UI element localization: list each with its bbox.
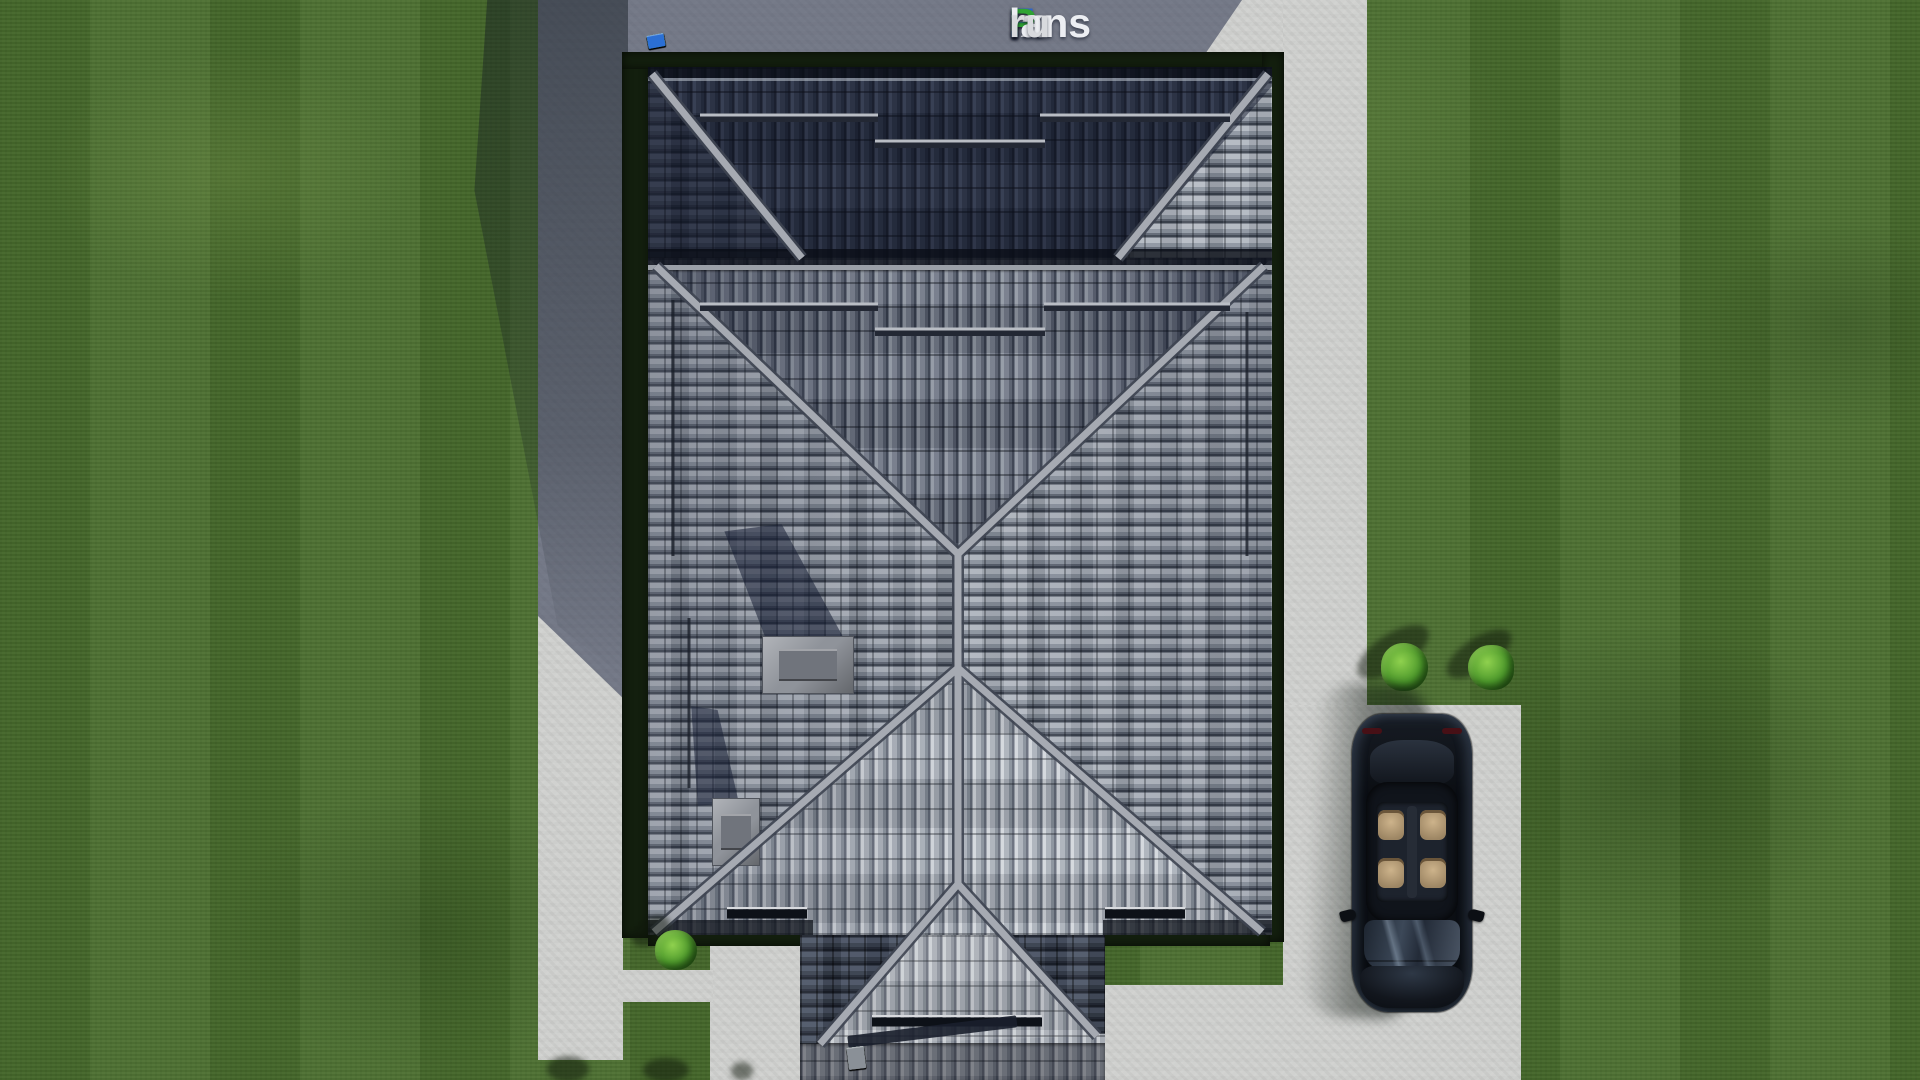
garage-fascia	[648, 78, 1272, 81]
car-sunroof	[1376, 802, 1448, 902]
chimney-cap	[779, 649, 837, 680]
watermark-segment: ru	[1009, 0, 1050, 47]
garage-roof	[648, 67, 1272, 258]
car-mirror-left	[1339, 908, 1357, 923]
porch-walkway-link	[618, 970, 713, 1002]
decor-tile	[647, 33, 666, 49]
plant-shadow	[643, 1058, 689, 1080]
car-roof	[1366, 782, 1458, 922]
garden-bed-left	[622, 52, 650, 938]
roof-vent	[712, 798, 760, 866]
decor-tile	[847, 1046, 867, 1070]
plant-shadow	[731, 1062, 753, 1080]
garage-gap-band	[648, 249, 1272, 258]
bush	[1468, 645, 1514, 690]
main-top-ridge-cap	[648, 265, 1272, 270]
car-center-console	[1407, 806, 1417, 898]
porch-walkway-right	[1105, 985, 1285, 1080]
front-bush	[655, 930, 697, 970]
aerial-house-render: FixPlans.ru	[0, 0, 1920, 1080]
car-seat	[1378, 858, 1404, 888]
bush	[1381, 643, 1428, 691]
garage-eave-top	[648, 67, 1272, 78]
main-gap-band	[648, 258, 1272, 265]
car-windshield	[1364, 920, 1460, 970]
car-taillight-right	[1442, 728, 1462, 734]
plant-shadow	[547, 1056, 589, 1080]
chimney	[762, 636, 854, 694]
porch-walkway	[710, 935, 800, 1080]
car-seat	[1420, 810, 1446, 840]
walkway-right	[1283, 0, 1367, 720]
car-seat	[1378, 810, 1404, 840]
car-taillight-left	[1362, 728, 1382, 734]
black-sedan	[1352, 714, 1472, 1012]
car-hood	[1360, 966, 1464, 1008]
roof-vent-cap	[721, 814, 750, 851]
car-seat	[1420, 858, 1446, 888]
car-rear-window	[1370, 740, 1454, 786]
main-eave-right	[1103, 920, 1272, 935]
